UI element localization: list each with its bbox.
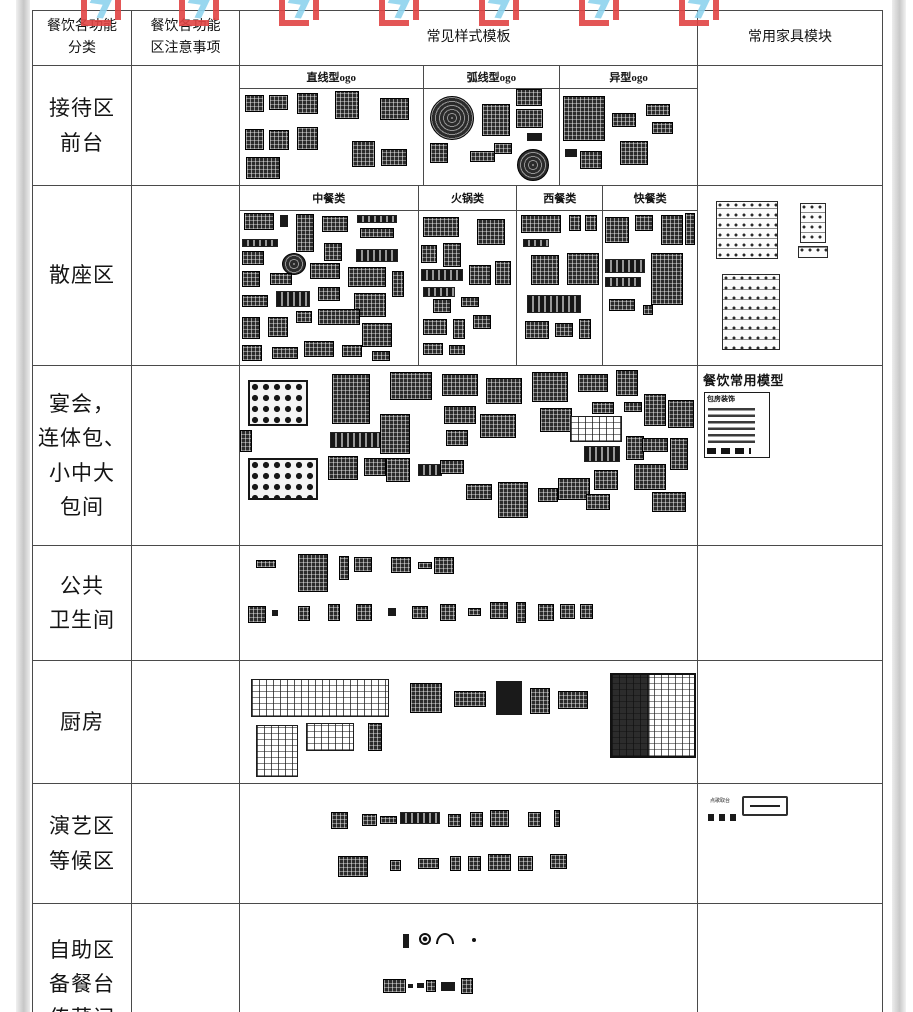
cad-block (612, 113, 636, 127)
cad-block (490, 602, 508, 619)
cad-block (558, 691, 588, 709)
cad-block (624, 402, 642, 412)
cad-block (296, 311, 312, 323)
cad-block (443, 243, 461, 267)
cad-block (410, 683, 442, 713)
cad-block (417, 983, 424, 988)
cad-block (440, 604, 456, 621)
header-furniture-column: 常用家具模块 (698, 11, 882, 66)
cad-block (518, 856, 533, 871)
cad-block (242, 317, 260, 339)
row-furniture-banquet: 餐饮常用模型 包房装饰 (698, 366, 882, 546)
subcol-header: 弧线型ogo (424, 66, 560, 89)
cad-block (297, 127, 318, 150)
cad-block (335, 91, 359, 119)
cad-block (421, 269, 463, 281)
cad-block (448, 814, 461, 827)
cad-block (372, 351, 390, 361)
cad-block (586, 494, 610, 510)
cad-block (242, 251, 264, 265)
cad-block (330, 432, 382, 448)
private-room-decor-label: 包房装饰 (707, 394, 735, 404)
cad-block (579, 319, 591, 339)
cad-block (569, 215, 581, 231)
row-label-line: 包间 (60, 490, 104, 524)
cad-block (635, 215, 653, 231)
cad-block (468, 856, 481, 871)
cad-block (324, 243, 342, 261)
row-label-line: 传菜间 (49, 1001, 115, 1012)
row-label-line: 自助区 (49, 933, 115, 967)
cad-block (270, 273, 292, 285)
cad-block (532, 372, 568, 402)
cad-block (392, 271, 404, 297)
row-label-line: 连体包、 (38, 421, 126, 455)
cad-block (434, 557, 454, 574)
cad-block (609, 299, 635, 311)
cad-block (708, 814, 714, 821)
cad-block (391, 557, 411, 573)
cad-block (516, 89, 542, 106)
cad-block (580, 604, 593, 619)
cad-block (418, 464, 442, 476)
cad-block (383, 979, 406, 993)
cad-block (242, 345, 262, 361)
cad-block (563, 96, 605, 141)
cad-block (453, 319, 465, 339)
header-line: 餐饮各功能 (47, 16, 117, 38)
scanned-catalog-page: ϟ ϟ ϟ ϟ ϟ ϟ ϟ 餐饮各功能 分类 餐饮各功能 区注意事项 常见样式模… (0, 0, 913, 1012)
row-label-banquet: 宴会， 连体包、 小中大 包间 (33, 366, 132, 546)
cad-block (466, 484, 492, 500)
row-label-line: 备餐台 (49, 967, 115, 1001)
cad-block (423, 287, 455, 297)
row-label-selfservice: 自助区 备餐台 传菜间 (33, 904, 132, 1012)
cad-block (605, 277, 641, 287)
cad-block (242, 239, 278, 247)
row-label-line: 等候区 (49, 844, 115, 878)
cad-block (469, 265, 491, 285)
cad-block (242, 271, 260, 287)
cad-block (540, 408, 572, 432)
song-station-tiny-label: 点歌取台 (710, 797, 730, 804)
cad-block (390, 372, 432, 400)
cad-block (538, 488, 558, 502)
cad-block (306, 723, 354, 751)
cad-block (719, 814, 725, 821)
cad-block (388, 608, 396, 616)
cad-block (652, 122, 673, 134)
row-furniture-selfservice (698, 904, 882, 1012)
cad-block (472, 938, 476, 942)
cad-block (412, 606, 428, 619)
cad-block (480, 414, 516, 438)
cad-block (332, 374, 370, 424)
page-left-edge-shadow (16, 0, 30, 1012)
cad-block (318, 287, 340, 301)
cad-block (328, 604, 340, 621)
row-notes-selfservice (132, 904, 240, 1012)
subcol-straight-logo: 直线型ogo (240, 66, 424, 185)
cad-block (381, 149, 407, 166)
cad-block (354, 557, 372, 572)
row-label-line: 卫生间 (49, 603, 115, 637)
cad-block (538, 604, 554, 621)
cad-block (423, 319, 447, 335)
row-templates-kitchen (240, 661, 698, 784)
cad-block (403, 934, 409, 948)
row-notes-banquet (132, 366, 240, 546)
header-line: 常见样式模板 (427, 27, 511, 49)
cad-block (380, 414, 410, 454)
cad-block (490, 810, 509, 827)
row-templates-reception: 直线型ogo 弧线型ogo 异型ogo (240, 66, 698, 186)
subcol-header: 西餐类 (517, 186, 602, 211)
cad-block (418, 858, 439, 869)
cad-block (444, 406, 476, 424)
subcol-header: 直线型ogo (240, 66, 423, 89)
cad-block (646, 104, 670, 116)
cad-block (297, 93, 318, 114)
cad-block (644, 394, 666, 426)
cad-block-area (517, 211, 602, 365)
cad-block (400, 812, 440, 824)
row-label-open-seating: 散座区 (33, 186, 132, 366)
cad-block (486, 378, 522, 404)
cad-block (245, 129, 264, 150)
cad-block (496, 681, 522, 715)
row-label-line: 宴会， (49, 387, 115, 421)
cad-block (567, 253, 599, 285)
cad-block (565, 149, 577, 157)
row-furniture-open-seating (698, 186, 882, 366)
cad-block (461, 978, 473, 994)
cad-block (362, 814, 377, 826)
cad-block (430, 96, 474, 140)
cad-block (527, 295, 581, 313)
cad-block (352, 141, 375, 167)
subcol-western-food: 西餐类 (517, 186, 603, 365)
cad-block (800, 203, 826, 243)
cad-block (386, 458, 410, 482)
cad-block (328, 456, 358, 480)
cad-block (554, 810, 560, 827)
cad-block (550, 854, 567, 869)
cad-block (318, 309, 360, 325)
cad-block (527, 133, 542, 141)
cad-block (298, 554, 328, 592)
subcol-header: 火锅类 (419, 186, 517, 211)
cad-block (594, 470, 618, 490)
cad-block (642, 438, 668, 452)
cad-block (578, 374, 608, 392)
cad-block (798, 246, 828, 258)
cad-block (494, 143, 512, 154)
row-notes-performance (132, 784, 240, 904)
cad-block (419, 933, 431, 945)
cad-block (418, 562, 432, 569)
cad-block (251, 679, 389, 717)
cad-block-area (603, 211, 697, 365)
cad-block (651, 253, 683, 305)
row-notes-open-seating (132, 186, 240, 366)
cad-block (390, 860, 401, 871)
cad-block (521, 215, 561, 233)
row-notes-reception (132, 66, 240, 186)
cad-block (256, 725, 298, 777)
cad-block (584, 446, 620, 462)
header-templates-column: 常见样式模板 (240, 11, 698, 66)
cad-block (516, 109, 543, 128)
row-notes-restroom (132, 546, 240, 661)
cad-block (661, 215, 683, 245)
cad-block-area (419, 211, 517, 365)
cad-block (610, 673, 696, 758)
cad-block (516, 602, 526, 623)
cad-block (531, 255, 559, 285)
cad-block (461, 297, 479, 307)
cad-block (248, 606, 266, 623)
cad-block (433, 299, 451, 313)
cad-block (380, 98, 409, 120)
cad-block (423, 217, 459, 237)
cad-block (245, 95, 264, 112)
cad-block (495, 261, 511, 285)
subcol-chinese-food: 中餐类 (240, 186, 419, 365)
cad-block (246, 157, 280, 179)
cad-block (322, 216, 348, 232)
cad-block (408, 984, 413, 988)
row-notes-kitchen (132, 661, 240, 784)
cad-block (368, 723, 382, 751)
row-templates-performance (240, 784, 698, 904)
cad-block (242, 295, 268, 307)
cad-block (248, 458, 318, 500)
cad-block (470, 151, 495, 162)
cad-block (269, 95, 288, 110)
cad-template-table: 餐饮各功能 分类 餐饮各功能 区注意事项 常见样式模板 常用家具模块 接待区 前… (32, 10, 883, 1012)
cad-block (560, 604, 575, 619)
header-line: 常用家具模块 (748, 27, 832, 49)
cad-block (585, 215, 597, 231)
cad-block (668, 400, 694, 428)
cad-block (525, 321, 549, 339)
row-label-line: 散座区 (49, 258, 115, 292)
cad-block (530, 688, 550, 714)
row-label-line: 演艺区 (49, 809, 115, 843)
header-notes-column: 餐饮各功能 区注意事项 (132, 11, 240, 66)
cad-block (282, 253, 306, 275)
subcol-irregular-logo: 异型ogo (560, 66, 697, 185)
cad-block (338, 856, 368, 877)
cad-block (605, 259, 645, 273)
subcol-hotpot: 火锅类 (419, 186, 518, 365)
row-templates-banquet (240, 366, 698, 546)
cad-block (310, 263, 340, 279)
cad-block (364, 458, 386, 476)
cad-block (276, 291, 310, 307)
cad-block-area (424, 89, 560, 185)
cad-block (580, 151, 602, 169)
cad-block-area (240, 89, 423, 185)
cad-block (296, 214, 314, 252)
cad-block (442, 374, 478, 396)
row-templates-open-seating: 中餐类 火锅类 西餐类 快餐类 (240, 186, 698, 366)
row-templates-selfservice (240, 904, 698, 1012)
cad-block (488, 854, 511, 871)
cad-block (722, 274, 780, 350)
cad-block (304, 341, 334, 357)
cad-block (570, 416, 622, 442)
cad-block (592, 402, 614, 414)
cad-block (348, 267, 386, 287)
cad-block (240, 430, 252, 452)
cad-block (670, 438, 688, 470)
cad-block (430, 143, 448, 163)
cad-block (616, 370, 638, 396)
row-label-restroom: 公共 卫生间 (33, 546, 132, 661)
cad-block (272, 610, 278, 616)
row-furniture-kitchen (698, 661, 882, 784)
cad-block (362, 323, 392, 347)
cad-block (652, 492, 686, 512)
row-label-kitchen: 厨房 (33, 661, 132, 784)
cad-block (356, 604, 372, 621)
header-line: 分类 (68, 38, 96, 60)
cad-block-area (560, 89, 697, 185)
cad-block (436, 933, 454, 944)
cad-block (268, 317, 288, 337)
row-label-reception: 接待区 前台 (33, 66, 132, 186)
row-label-line: 厨房 (60, 705, 104, 739)
cad-block (605, 217, 629, 243)
private-room-decor-block: 包房装饰 (704, 392, 770, 458)
cad-block (298, 606, 310, 621)
cad-block (528, 812, 541, 827)
cad-block (468, 608, 481, 616)
cad-block (423, 343, 443, 355)
cad-block (269, 130, 289, 150)
cad-block (426, 980, 436, 992)
row-label-line: 前台 (60, 126, 104, 160)
cad-block (716, 201, 778, 259)
cad-block (517, 149, 549, 181)
cad-block (446, 430, 468, 446)
cad-block (449, 345, 465, 355)
cad-block (256, 560, 276, 568)
cad-block (634, 464, 666, 490)
cad-block (441, 982, 455, 991)
row-templates-restroom (240, 546, 698, 661)
cad-block-area (240, 211, 418, 365)
subcol-curved-logo: 弧线型ogo (424, 66, 561, 185)
cad-block (380, 816, 397, 824)
row-furniture-performance: 点歌取台 (698, 784, 882, 904)
header-line: 餐饮各功能 (151, 16, 221, 38)
cad-block (685, 213, 695, 245)
row-label-line: 小中大 (49, 456, 115, 490)
furniture-models-title: 餐饮常用模型 (703, 370, 784, 389)
cad-block (440, 460, 464, 474)
cad-block (477, 219, 505, 245)
cad-block (248, 380, 308, 426)
subcol-fast-food: 快餐类 (603, 186, 697, 365)
page-right-edge-shadow (892, 0, 906, 1012)
cad-block (272, 347, 298, 359)
cad-block (357, 215, 397, 223)
cad-block (342, 345, 362, 357)
cad-block (244, 213, 274, 230)
cad-block (421, 245, 437, 263)
header-line: 区注意事项 (151, 38, 221, 60)
cad-block (339, 556, 349, 580)
header-category-column: 餐饮各功能 分类 (33, 11, 132, 66)
cad-block (730, 814, 736, 821)
cad-block (280, 215, 288, 227)
row-furniture-restroom (698, 546, 882, 661)
cad-block (360, 228, 394, 238)
cad-block (450, 856, 461, 871)
row-label-line: 公共 (60, 569, 104, 603)
cad-block (454, 691, 486, 707)
cad-block (620, 141, 648, 165)
cad-block (356, 249, 398, 262)
cad-block (643, 305, 653, 315)
cad-block (331, 812, 348, 829)
row-furniture-reception (698, 66, 882, 186)
cad-block (742, 796, 788, 816)
cad-block (498, 482, 528, 518)
cad-block (482, 104, 510, 136)
row-label-line: 接待区 (49, 91, 115, 125)
subcol-header: 中餐类 (240, 186, 418, 211)
subcol-header: 异型ogo (560, 66, 697, 89)
subcol-header: 快餐类 (603, 186, 697, 211)
cad-block (523, 239, 549, 247)
row-label-performance: 演艺区 等候区 (33, 784, 132, 904)
cad-block (473, 315, 491, 329)
cad-block (555, 323, 573, 337)
cad-block (470, 812, 483, 827)
